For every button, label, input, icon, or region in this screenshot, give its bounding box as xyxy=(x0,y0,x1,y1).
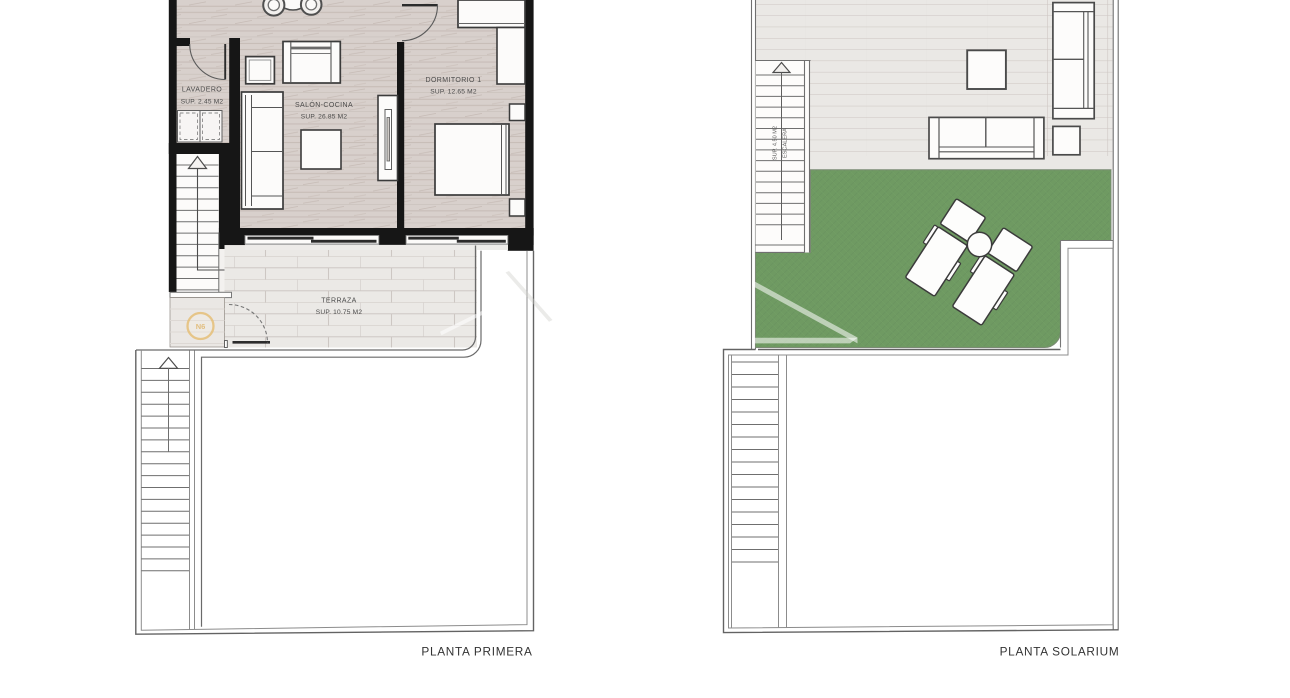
svg-text:PLANTA PRIMERA: PLANTA PRIMERA xyxy=(421,645,532,659)
svg-text:SUP. 2.45 M2: SUP. 2.45 M2 xyxy=(181,99,224,106)
svg-text:SUP. 26.85 M2: SUP. 26.85 M2 xyxy=(301,114,348,121)
svg-text:LAVADERO: LAVADERO xyxy=(182,87,222,94)
svg-text:N6: N6 xyxy=(196,322,206,331)
svg-text:SUP. 12.65 M2: SUP. 12.65 M2 xyxy=(430,89,477,96)
svg-text:ESCALERA: ESCALERA xyxy=(783,128,789,158)
svg-text:PLANTA SOLARIUM: PLANTA SOLARIUM xyxy=(1000,645,1120,659)
svg-text:SUP. 10.75 M2: SUP. 10.75 M2 xyxy=(316,309,363,316)
svg-text:SUP. 4.50 M2: SUP. 4.50 M2 xyxy=(773,126,779,160)
svg-text:SALÓN-COCINA: SALÓN-COCINA xyxy=(295,100,353,109)
svg-text:DORMITORIO 1: DORMITORIO 1 xyxy=(425,77,481,84)
svg-text:TERRAZA: TERRAZA xyxy=(321,298,356,305)
